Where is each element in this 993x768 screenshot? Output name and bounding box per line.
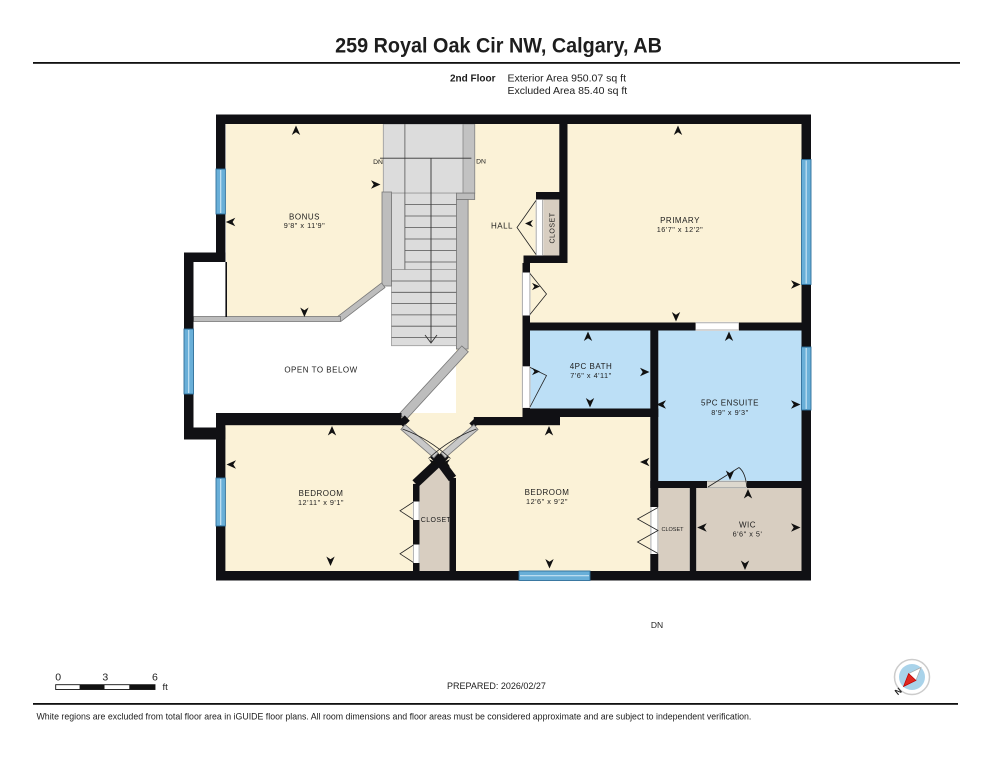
svg-text:DN: DN [651, 620, 663, 630]
svg-text:DN: DN [476, 159, 486, 166]
svg-text:16'7" x 12'2": 16'7" x 12'2" [657, 225, 704, 234]
svg-text:7'6" x 4'11": 7'6" x 4'11" [570, 371, 611, 380]
svg-text:CLOSET: CLOSET [421, 517, 452, 524]
svg-text:259 Royal Oak Cir NW, Calgary,: 259 Royal Oak Cir NW, Calgary, AB [335, 35, 662, 58]
svg-text:5PC ENSUITE: 5PC ENSUITE [701, 399, 759, 408]
svg-text:PREPARED: 2026/02/27: PREPARED: 2026/02/27 [447, 681, 546, 691]
svg-text:Excluded Area 85.40 sq ft: Excluded Area 85.40 sq ft [508, 85, 628, 97]
svg-text:HALL: HALL [491, 222, 513, 231]
svg-text:BEDROOM: BEDROOM [525, 488, 570, 497]
svg-text:OPEN TO BELOW: OPEN TO BELOW [284, 366, 357, 375]
svg-text:4PC BATH: 4PC BATH [570, 362, 613, 371]
svg-text:CLOSET: CLOSET [661, 527, 684, 533]
svg-text:8'9" x 9'3": 8'9" x 9'3" [711, 408, 748, 417]
svg-text:12'11" x 9'1": 12'11" x 9'1" [298, 498, 344, 507]
svg-text:12'6" x 9'2": 12'6" x 9'2" [526, 497, 568, 506]
svg-text:6'6" x 5': 6'6" x 5' [733, 530, 763, 539]
svg-text:ft: ft [163, 682, 169, 693]
svg-text:6: 6 [152, 672, 158, 684]
svg-text:WIC: WIC [739, 521, 756, 530]
svg-text:CLOSET: CLOSET [550, 212, 557, 243]
svg-text:Exterior Area 950.07 sq ft: Exterior Area 950.07 sq ft [508, 72, 627, 84]
svg-text:PRIMARY: PRIMARY [660, 216, 700, 225]
svg-text:9'8" x 11'9": 9'8" x 11'9" [284, 221, 325, 230]
svg-text:0: 0 [55, 672, 61, 684]
svg-text:DN: DN [373, 159, 383, 166]
svg-text:BEDROOM: BEDROOM [299, 489, 344, 498]
svg-text:3: 3 [102, 672, 108, 684]
svg-text:2nd Floor: 2nd Floor [450, 73, 496, 84]
svg-text:White regions are excluded fro: White regions are excluded from total fl… [37, 712, 752, 722]
